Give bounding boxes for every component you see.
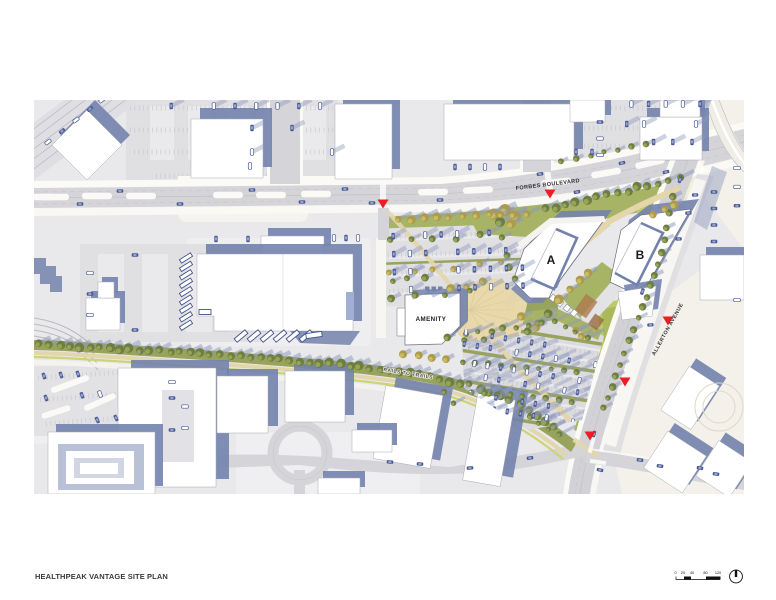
svg-text:20: 20 [681, 571, 685, 575]
svg-text:0: 0 [674, 571, 676, 575]
svg-text:A: A [547, 253, 556, 267]
svg-text:80: 80 [703, 571, 707, 575]
svg-text:B: B [636, 248, 645, 262]
svg-text:40: 40 [690, 571, 694, 575]
svg-text:HEALTHPEAK VANTAGE SITE PLAN: HEALTHPEAK VANTAGE SITE PLAN [35, 572, 168, 581]
svg-text:120: 120 [715, 571, 721, 575]
svg-text:AMENITY: AMENITY [416, 316, 447, 323]
